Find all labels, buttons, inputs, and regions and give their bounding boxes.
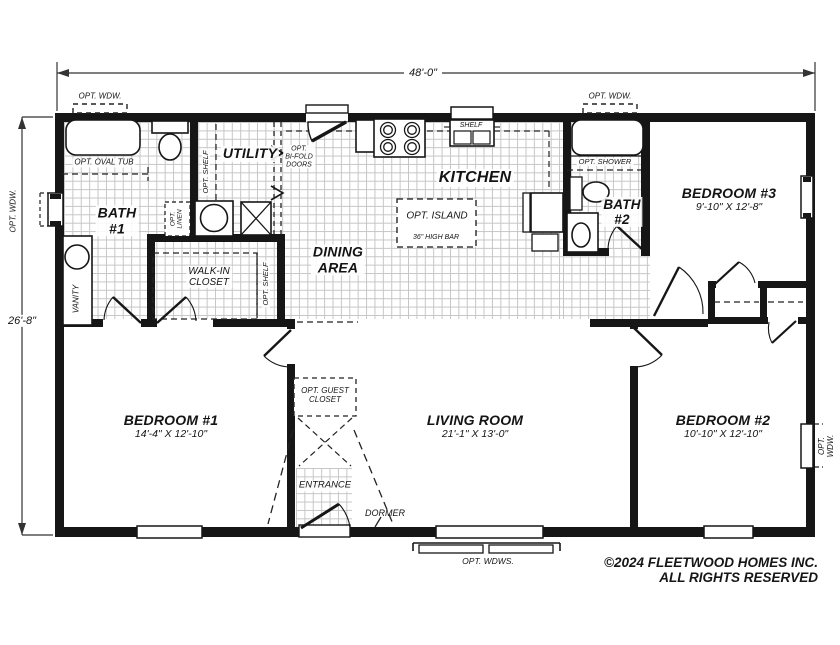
plan-linework bbox=[0, 0, 840, 645]
tub-bath2 bbox=[572, 120, 643, 155]
high-bar-label: 36" HIGH BAR bbox=[413, 234, 459, 242]
utility-label: UTILITY bbox=[221, 146, 279, 162]
opt-oval-tub-label: OPT. OVAL TUB bbox=[72, 159, 135, 168]
shelf-label: SHELF bbox=[460, 122, 483, 130]
window-cap bbox=[803, 213, 811, 218]
bath2-door-leaf bbox=[617, 226, 644, 251]
opt-shelf-label-closet: OPT. SHELF bbox=[262, 260, 270, 307]
arrow-down-icon bbox=[18, 523, 26, 535]
bath2-label: BATH #2 bbox=[601, 197, 642, 227]
opt-shelf-label-bath1: OPT. SHELF bbox=[202, 148, 210, 195]
window-kitchen bbox=[451, 107, 493, 119]
opt-linen-label: OPT. LINEN bbox=[170, 209, 185, 228]
wall-mid-4 bbox=[590, 319, 708, 327]
width-dimension-label: 48'-0" bbox=[404, 67, 442, 79]
opt-island-label: OPT. ISLAND bbox=[406, 210, 467, 221]
bedroom1-door-arc bbox=[264, 356, 290, 367]
height-dimension-label: 26'-8" bbox=[3, 315, 41, 327]
opt-wdw-label-bedroom2-right: OPT. WDW. bbox=[818, 435, 836, 458]
arrow-left-icon bbox=[57, 69, 69, 77]
walk-in-closet-label: WALK-IN CLOSET bbox=[186, 266, 232, 288]
window-cap bbox=[50, 194, 61, 199]
kitchen-cabinet bbox=[356, 120, 376, 152]
bedroom3-door-arc bbox=[679, 267, 703, 314]
bath2-door-arc bbox=[608, 226, 617, 249]
wall-mid-3 bbox=[213, 319, 295, 327]
bedroom1-label: BEDROOM #1 bbox=[124, 413, 219, 429]
dining-area-label: DINING AREA bbox=[311, 244, 365, 275]
living-room-dims: 21'-1" X 13'-0" bbox=[442, 429, 508, 441]
opt-wdw-label-left: OPT. WDW. bbox=[10, 190, 19, 233]
opt-bifold-doors-label: OPT. BI-FOLD DOORS bbox=[283, 145, 315, 168]
sink-counter-bath2 bbox=[570, 177, 582, 210]
copyright-line: ©2024 FLEETWOOD HOMES INC. bbox=[604, 556, 818, 571]
bedroom2-door-arc bbox=[635, 355, 662, 367]
wall-bath1-closet bbox=[147, 234, 155, 327]
fridge bbox=[531, 193, 563, 232]
opt-wdw-label-bath2-top: OPT. WDW. bbox=[589, 93, 632, 102]
washer-drum-icon bbox=[201, 205, 228, 232]
wall-bedroom2-post bbox=[630, 319, 638, 329]
entrance-door-arc bbox=[339, 504, 350, 527]
opt-window-pane bbox=[419, 545, 483, 553]
opt-window-pane bbox=[489, 545, 553, 553]
bedroom2-label: BEDROOM #2 bbox=[676, 413, 771, 429]
bedroom1-dims: 14'-4" X 12'-10" bbox=[135, 429, 207, 441]
oval-tub-bath1 bbox=[66, 120, 140, 155]
vanity-label: VANITY bbox=[73, 283, 82, 315]
window-living-room bbox=[436, 526, 543, 538]
window-bedroom1 bbox=[137, 526, 202, 538]
fridge-door bbox=[523, 193, 530, 232]
bedroom3-label: BEDROOM #3 bbox=[682, 186, 777, 202]
opt-guest-closet-label: OPT. GUEST CLOSET bbox=[299, 387, 351, 405]
bedroom3-closet-door-arc bbox=[739, 262, 755, 283]
shelf-cabinet-door bbox=[454, 131, 471, 144]
bedroom3-dims: 9'-10" X 12'-8" bbox=[696, 202, 762, 214]
opt-window-bath2-top bbox=[583, 104, 637, 113]
opt-window-bath1-top bbox=[73, 104, 127, 113]
toilet-bowl-bath1 bbox=[159, 134, 181, 160]
bedroom1-door-leaf bbox=[264, 330, 291, 356]
wall-bedroom1-post bbox=[287, 319, 295, 329]
guest-closet-swing bbox=[298, 418, 351, 466]
optional-windows bbox=[73, 104, 637, 113]
bath1-door-arc bbox=[104, 297, 113, 320]
shelf-cabinet-door bbox=[473, 131, 490, 144]
wall-closet-stub-a bbox=[708, 281, 715, 324]
wall-closet-bottom-a bbox=[708, 317, 768, 324]
toilet-bowl-bath2 bbox=[572, 223, 590, 247]
bedroom2-closet-door-leaf bbox=[772, 321, 796, 343]
bedroom3-door-leaf bbox=[654, 267, 679, 316]
arrow-up-icon bbox=[18, 117, 26, 129]
wall-closet-bottom-b bbox=[798, 317, 806, 324]
dormer-pointer bbox=[375, 517, 381, 527]
wall-bedroom2-left bbox=[630, 366, 638, 527]
bedroom2-door-leaf bbox=[634, 328, 662, 355]
rear-door-panel bbox=[306, 105, 348, 113]
bedroom2-closet-door-arc bbox=[768, 322, 772, 343]
window-bedroom2-right-opt bbox=[801, 424, 813, 468]
dormer-label: DORMER bbox=[365, 508, 405, 518]
living-room-label: LIVING ROOM bbox=[427, 413, 523, 429]
bedroom3-closet-door-leaf bbox=[715, 262, 739, 284]
bath1-door-leaf bbox=[113, 297, 141, 323]
toilet-tank-bath1 bbox=[152, 121, 188, 133]
opt-windows-symbol bbox=[413, 543, 560, 553]
walls bbox=[55, 113, 815, 537]
floor-plan: 48'-0" 26'-8" OPT. WDW. OPT. WDW. OPT. W… bbox=[0, 0, 840, 645]
closet-door-arc bbox=[186, 297, 196, 321]
bedroom2-dims: 10'-10" X 12'-10" bbox=[684, 429, 762, 441]
opt-wdws-label: OPT. WDWS. bbox=[462, 557, 514, 567]
bath1-label: BATH #1 bbox=[96, 205, 139, 236]
wall-closet-dining bbox=[277, 234, 285, 327]
arrow-right-icon bbox=[803, 69, 815, 77]
wall-closet-stub-b bbox=[760, 281, 767, 324]
opt-wdw-label-bath1-top: OPT. WDW. bbox=[79, 93, 122, 102]
window-bedroom3-right bbox=[801, 176, 813, 218]
kitchen-counter-end bbox=[532, 234, 558, 251]
entrance-door-panel bbox=[299, 525, 350, 537]
window-cap bbox=[50, 221, 61, 226]
kitchen-label: KITCHEN bbox=[437, 169, 514, 187]
entrance-label: ENTRANCE bbox=[297, 481, 353, 492]
bifold-doors bbox=[271, 122, 283, 234]
wall-mid-2 bbox=[141, 319, 157, 327]
opt-shower-label: OPT. SHOWER bbox=[577, 158, 634, 166]
window-cap bbox=[803, 177, 811, 182]
rights-line: ALL RIGHTS RESERVED bbox=[659, 571, 818, 586]
guest-closet-swing bbox=[299, 418, 352, 466]
vanity-sink bbox=[65, 245, 89, 269]
window-bedroom2-bottom bbox=[704, 526, 753, 538]
